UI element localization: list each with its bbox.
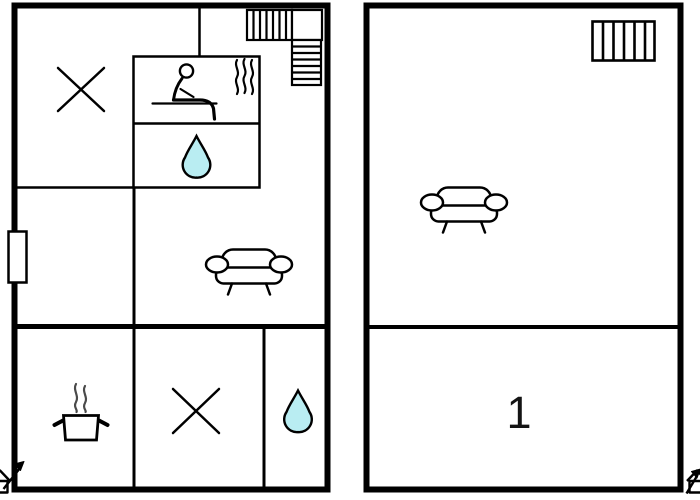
entrance-arrow-icon <box>687 469 700 494</box>
floor-plan-left <box>0 6 328 493</box>
staircase-icon <box>593 22 655 61</box>
room-number-label: 1 <box>506 387 531 438</box>
door-icon <box>9 232 27 283</box>
floor-plan-image: 1 <box>0 0 700 500</box>
floor-plan-right: 1 <box>367 6 700 494</box>
floor-plan-canvas: 1 <box>0 0 700 500</box>
